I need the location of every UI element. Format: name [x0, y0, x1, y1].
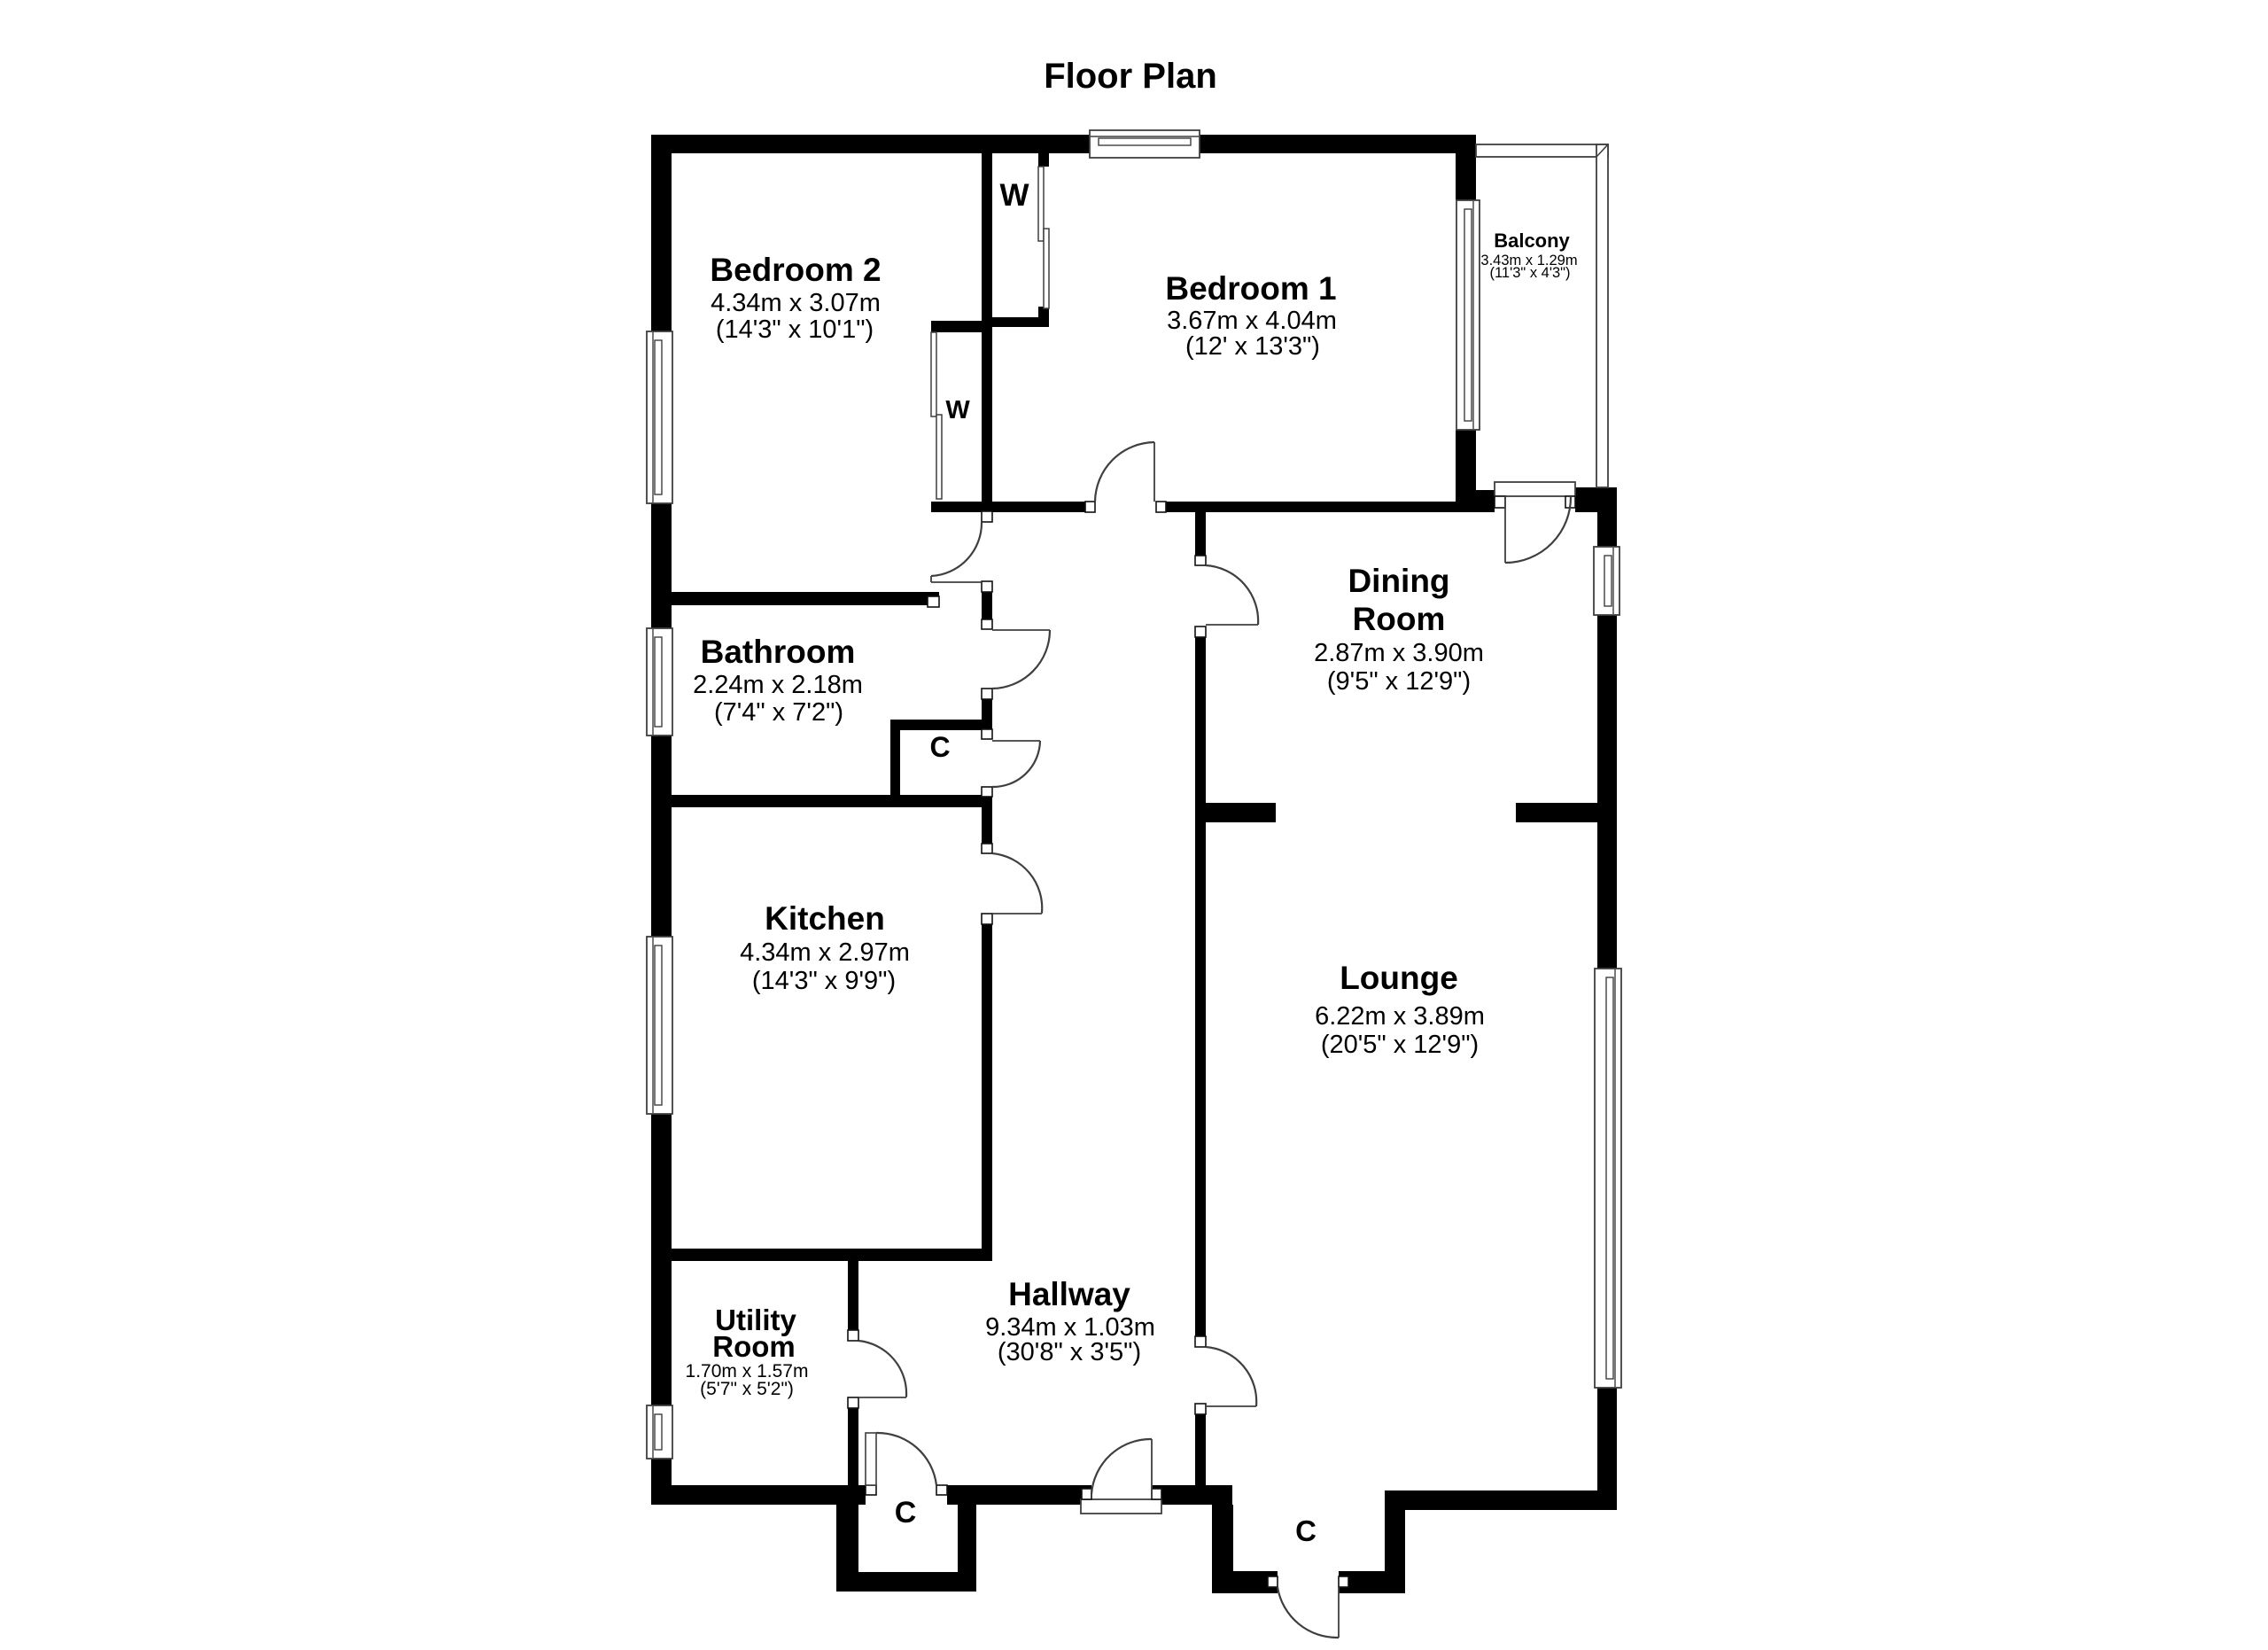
- svg-text:Bedroom 2: Bedroom 2: [710, 252, 881, 288]
- svg-text:(11'3" x 4'3"): (11'3" x 4'3"): [1489, 265, 1570, 281]
- svg-text:3.67m x 4.04m: 3.67m x 4.04m: [1167, 307, 1337, 335]
- svg-text:Balcony: Balcony: [1494, 230, 1570, 252]
- svg-text:Floor Plan: Floor Plan: [1044, 57, 1217, 96]
- svg-text:(20'5" x 12'9"): (20'5" x 12'9"): [1321, 1031, 1479, 1059]
- svg-text:(30'8" x 3'5"): (30'8" x 3'5"): [998, 1338, 1141, 1366]
- svg-text:Kitchen: Kitchen: [765, 900, 885, 937]
- svg-text:W: W: [945, 396, 970, 424]
- svg-text:C: C: [929, 731, 950, 763]
- svg-text:W: W: [999, 178, 1029, 213]
- svg-text:(9'5" x 12'9"): (9'5" x 12'9"): [1327, 667, 1471, 696]
- svg-text:Room: Room: [1353, 601, 1446, 637]
- svg-text:C: C: [1295, 1514, 1317, 1547]
- svg-text:Bedroom 1: Bedroom 1: [1165, 270, 1336, 307]
- svg-text:6.22m x 3.89m: 6.22m x 3.89m: [1315, 1002, 1485, 1031]
- svg-text:Bathroom: Bathroom: [701, 634, 856, 670]
- svg-text:Room: Room: [712, 1330, 796, 1363]
- svg-text:(5'7" x 5'2"): (5'7" x 5'2"): [700, 1379, 794, 1399]
- svg-text:Hallway: Hallway: [1008, 1276, 1130, 1312]
- svg-text:2.87m x 3.90m: 2.87m x 3.90m: [1314, 639, 1484, 667]
- svg-text:(14'3" x 9'9"): (14'3" x 9'9"): [752, 967, 896, 995]
- svg-text:(12' x 13'3"): (12' x 13'3"): [1185, 332, 1320, 361]
- svg-text:Dining: Dining: [1348, 563, 1449, 599]
- svg-text:Lounge: Lounge: [1340, 960, 1458, 996]
- svg-text:C: C: [895, 1496, 917, 1529]
- svg-text:(14'3" x 10'1"): (14'3" x 10'1"): [716, 315, 874, 344]
- svg-text:2.24m x 2.18m: 2.24m x 2.18m: [693, 671, 863, 699]
- svg-text:4.34m x 2.97m: 4.34m x 2.97m: [740, 938, 910, 967]
- svg-text:(7'4" x 7'2"): (7'4" x 7'2"): [714, 698, 843, 727]
- svg-text:4.34m x 3.07m: 4.34m x 3.07m: [711, 289, 881, 317]
